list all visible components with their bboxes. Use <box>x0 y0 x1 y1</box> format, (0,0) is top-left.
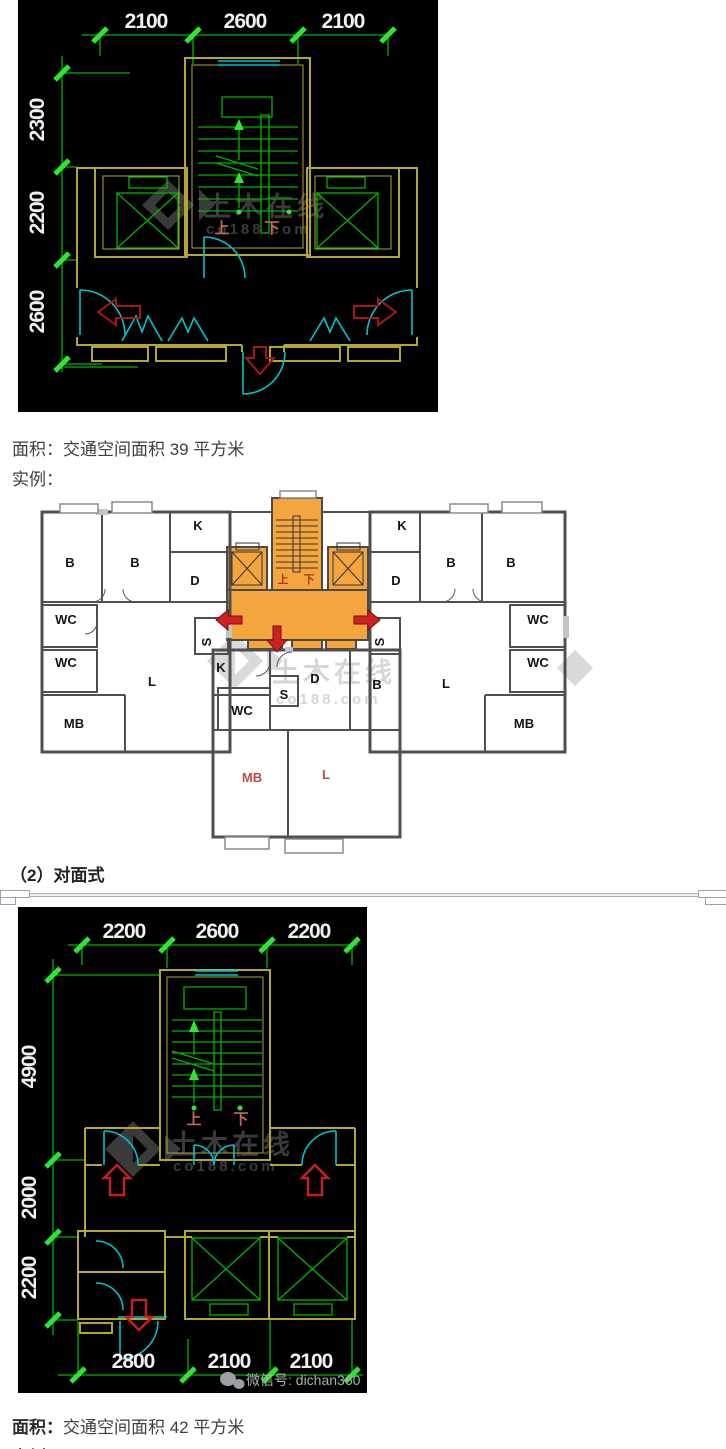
dimension-label: 2200 <box>288 920 331 943</box>
floorplan-example-image: 土木在线co188.com 上下 <box>30 490 620 858</box>
stair-label: 上 <box>214 220 229 237</box>
dimension-label: 4900 <box>18 1045 41 1088</box>
room-label: B <box>506 555 515 570</box>
room-label: S <box>280 687 289 702</box>
example-label-2: 实例： <box>12 1443 63 1449</box>
room-label: D <box>310 671 319 686</box>
area-caption-1: 面积：交通空间面积 39 平方米 <box>12 435 244 460</box>
room-label: D <box>190 573 199 588</box>
room-label: B <box>130 555 139 570</box>
floorplan-svg: 土木在线co188.com 上下 <box>30 490 620 858</box>
dimension-label: 2600 <box>26 290 49 333</box>
area-caption-2-prefix: 面积： <box>12 1418 63 1437</box>
room-label: K <box>193 518 203 533</box>
room-label: MB <box>514 716 534 731</box>
cad-plan-image-2: 土木在线co188.com <box>18 907 367 1393</box>
room-label: WC <box>527 612 549 627</box>
section-divider <box>0 893 726 897</box>
example-label-1: 实例： <box>12 465 63 490</box>
dimension-label: 2100 <box>322 10 365 33</box>
stair-label: 下 <box>264 220 279 237</box>
room-label: S <box>372 637 387 646</box>
room-label: L <box>322 767 330 782</box>
room-label: L <box>442 676 450 691</box>
room-label: L <box>148 674 156 689</box>
room-label: K <box>216 660 226 675</box>
wechat-watermark-text: 微信号: dichan360 <box>246 1372 361 1388</box>
dimension-label: 2100 <box>208 1350 251 1373</box>
left-dimensions: 230022002600 <box>26 98 49 333</box>
stair-label: 下 <box>304 573 315 586</box>
room-label: B <box>446 555 455 570</box>
room-label: D <box>391 573 400 588</box>
room-label: K <box>397 518 407 533</box>
area-caption-1-text: 交通空间面积 39 平方米 <box>63 440 244 459</box>
dimension-label: 2100 <box>290 1350 333 1373</box>
stair-label: 上 <box>186 1111 201 1128</box>
dimension-label: 2200 <box>18 1256 41 1299</box>
room-label: B <box>372 677 381 692</box>
dimension-label: 2800 <box>112 1350 155 1373</box>
stair-label: 下 <box>233 1111 248 1128</box>
stair-label: 上 <box>278 572 289 586</box>
room-label: B <box>65 555 74 570</box>
area-caption-1-prefix: 面积： <box>12 440 63 459</box>
room-label: WC <box>527 655 549 670</box>
dimension-label: 2600 <box>224 10 267 33</box>
dimension-label: 2600 <box>196 920 239 943</box>
dimension-label: 2100 <box>125 10 168 33</box>
wechat-watermark-text: 微信号: dichan360 <box>246 1372 361 1388</box>
room-label: MB <box>242 770 262 785</box>
dimension-label: 2200 <box>26 191 49 234</box>
area-caption-2-text: 交通空间面积 42 平方米 <box>63 1418 244 1437</box>
top-dimensions: 220026002200 <box>103 920 331 943</box>
dimension-label: 2000 <box>18 1176 41 1219</box>
room-label: WC <box>55 655 77 670</box>
divider-handle-right-bottom[interactable] <box>705 897 726 905</box>
dimension-label: 2300 <box>26 98 49 141</box>
dimension-label: 2200 <box>103 920 146 943</box>
article-page: 土木在线co188.com <box>0 0 726 1449</box>
highlighted-traffic-core <box>227 498 368 649</box>
area-caption-2: 面积：交通空间面积 42 平方米 <box>12 1413 244 1438</box>
section-heading: （2）对面式 <box>10 861 104 886</box>
cad-plan-image-1: 土木在线co188.com <box>18 0 438 412</box>
bottom-dimensions: 280021002100 <box>112 1350 333 1373</box>
room-label: WC <box>55 612 77 627</box>
cad-plan-2-svg: 土木在线co188.com <box>18 907 367 1393</box>
room-label: MB <box>64 716 84 731</box>
room-label: S <box>199 637 214 646</box>
divider-handle-left-bottom[interactable] <box>0 897 16 905</box>
top-dimensions: 210026002100 <box>125 10 365 33</box>
room-label: WC <box>231 703 253 718</box>
cad-plan-1-svg: 土木在线co188.com <box>18 0 438 412</box>
